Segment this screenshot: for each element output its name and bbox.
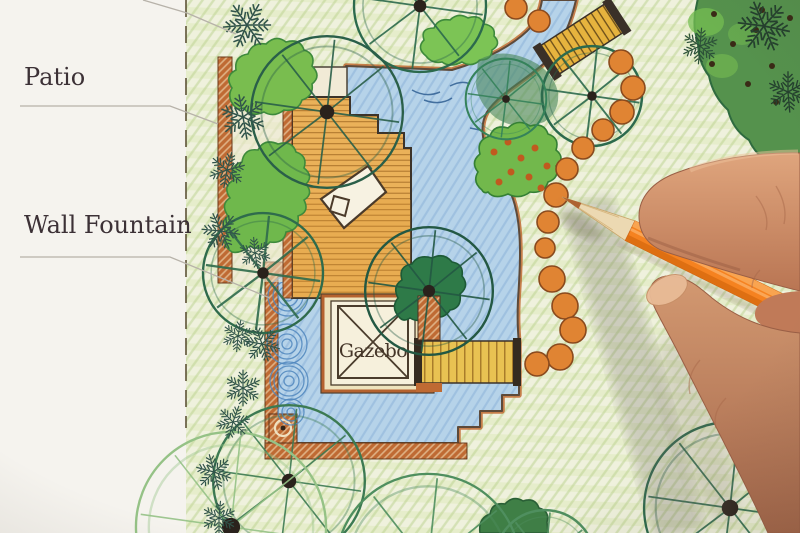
plan-drawing: Gazebo <box>0 0 800 533</box>
photo-vignette <box>0 0 800 533</box>
landscape-plan-photo: Gazebo <box>0 0 800 533</box>
